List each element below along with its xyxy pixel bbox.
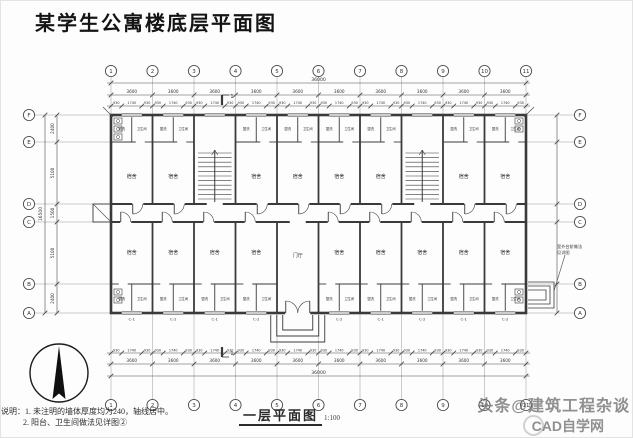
grid-bubble-bottom-3-label: 3 [192,403,196,409]
window-dim-label: 930 [404,349,410,353]
window-mark-label: C-2 [502,317,509,322]
window-dim-label: 930 [310,349,316,353]
window-dim-label: 1740 [376,101,385,105]
room-label-wash: 盥洗 [160,126,167,131]
entrance-porch: 室外台阶做法见详图 [271,243,582,342]
window-dim-label: 930 [351,101,357,105]
left-chain-label: 2400 [50,123,55,134]
window-dim-label: 1740 [335,101,344,105]
window-dim-label: 930 [310,101,316,105]
note-line-1: 说明：1. 未注明的墙体厚度均为240，轴线居中。 [1,406,173,417]
bay-dim-label: 3600 [334,89,345,94]
room-label-bath: 卫生间 [386,126,396,131]
bay-dim-label: 3600 [417,89,428,94]
plan-caption-text: 一层平面图 [239,408,322,426]
grid-bubble-right-D-label: D [578,202,582,208]
room-label-dorm: 宿舍 [459,249,469,256]
grid-bubble-top-3-label: 3 [192,69,196,75]
bay-dim-label: 3600 [500,358,511,363]
room-label-bath: 卫生间 [386,296,396,301]
room-label-bath: 卫生间 [344,126,354,131]
dimension-lines: 3600036003600360036003600360036003600360… [38,77,559,378]
room-label-wash: 盥洗 [326,296,333,301]
grid-bubble-top-10-label: 10 [481,69,488,75]
watermark-line2: CAD自学网 [477,416,604,436]
window-dim-label: 930 [321,101,327,105]
room-label-wash: 盥洗 [326,126,333,131]
window-dim-label: 1740 [169,349,178,353]
room-label-bath: 卫生间 [261,296,271,301]
room-label-dorm: 宿舍 [168,249,178,256]
window-dim-label: 930 [196,101,202,105]
window-dim-label: 930 [113,101,119,105]
window-mark-label: C-1 [378,317,385,322]
grid-bubble-top-8-label: 8 [400,69,404,75]
bay-dim-label: 3600 [209,358,220,363]
window-dim-label: 930 [393,349,399,353]
grid-bubble-left-E-label: E [27,140,31,146]
bay-dim-label: 3600 [168,89,179,94]
bay-dim-label: 3600 [292,358,303,363]
grid-bubble-top-11-label: 11 [523,69,530,75]
window-dim-label: 930 [487,349,493,353]
window-dim-label: 930 [362,349,368,353]
room-label-wash: 盥洗 [243,126,250,131]
plan-caption: 一层平面图1:100 [239,405,340,425]
room-label-wash: 盥洗 [243,296,250,301]
window-dim-label: 1740 [252,349,261,353]
room-label-bath: 卫生间 [220,296,230,301]
room-label-bath: 卫生间 [427,296,437,301]
plan-scale: 1:100 [324,414,340,422]
room-label-bath: 卫生间 [303,126,313,131]
room-label-wash: 盥洗 [492,126,499,131]
window-dim-label: 930 [144,101,150,105]
grid-bubble-bottom-4-label: 4 [234,403,238,409]
room-label-hall: 门厅 [293,252,303,259]
grid-bubble-left-B-label: B [27,282,31,288]
window-dim-label: 930 [434,349,440,353]
window-dim-label: 1740 [127,101,136,105]
window-dim-label: 930 [517,349,523,353]
bay-dim-label: 3600 [417,358,428,363]
grid-bubble-top-9-label: 9 [441,69,445,75]
room-label-dorm: 宿舍 [376,173,386,180]
grid-bubble-left-D-label: D [27,202,31,208]
room-label-wash: 盥洗 [492,296,499,301]
window-dim-label: 1740 [335,349,344,353]
room-label-bath: 卫生间 [510,126,520,131]
window-dim-label: 930 [434,101,440,105]
window-mark-label: C-1 [461,317,468,322]
grid-bubble-top-5-label: 5 [275,69,279,75]
bay-dim-label: 3600 [126,89,137,94]
room-label-dorm: 宿舍 [251,249,261,256]
window-dim-label: 930 [185,101,191,105]
watermark: 头条@建筑工程杂谈 CAD自学网 [477,392,630,436]
room-label-wash: 盥洗 [409,296,416,301]
room-label-dorm: 宿舍 [334,249,344,256]
window-dim-label: 1740 [252,101,261,105]
steps-annotation: 室外台阶做法 [557,243,582,250]
left-chain-label: 5100 [50,247,55,258]
grid-bubble-top-1-label: 1 [109,69,113,75]
window-dim-label: 930 [476,349,482,353]
window-dim-label: 930 [227,101,233,105]
room-label-wash: 盥洗 [284,126,291,131]
window-dim-label: 930 [196,349,202,353]
window-dim-label: 1740 [418,101,427,105]
page-title: 某学生公寓楼底层平面图 [35,7,277,36]
window-dim-label: 1740 [459,101,468,105]
window-dim-label: 930 [268,101,274,105]
room-label-dorm: 宿舍 [168,173,178,180]
grid-bubble-left-A-label: A [27,311,31,317]
room-label-bath: 卫生间 [469,296,479,301]
window-dim-label: 930 [238,101,244,105]
left-chain-label: 1500 [50,207,55,218]
window-mark-label: C-2 [419,317,426,322]
grid-bubble-top-6-label: 6 [317,69,321,75]
room-label-bath: 卫生间 [510,296,520,301]
room-label-wash: 盥洗 [367,296,374,301]
room-label-wash: 盥洗 [367,126,374,131]
bay-dim-label: 3600 [251,89,262,94]
room-label-wash: 盥洗 [160,296,167,301]
overall-length-top: 36000 [311,77,326,83]
room-label-wash: 盥洗 [201,296,208,301]
window-dim-label: 930 [517,101,523,105]
grid-bubble-top-4-label: 4 [234,69,238,75]
window-dim-label: 1740 [501,101,510,105]
window-dim-label: 1740 [293,101,302,105]
overall-width-label: 16500 [38,207,44,221]
window-dim-label: 1740 [210,349,219,353]
window-dim-label: 1740 [376,349,385,353]
window-dim-label: 930 [113,349,119,353]
bay-dim-label: 3600 [209,89,220,94]
window-dim-label: 930 [238,349,244,353]
room-label-dorm: 宿舍 [127,249,137,256]
window-mark-label: C-1 [129,317,136,322]
grid-bubble-bottom-9-label: 9 [441,403,445,409]
left-chain-label: 2400 [50,293,55,304]
window-dim-label: 930 [144,349,150,353]
bay-dim-label: 3600 [458,89,469,94]
bay-dim-label: 3600 [458,358,469,363]
window-mark-label: C-1 [212,317,219,322]
window-dim-label: 930 [279,101,285,105]
window-dim-label: 930 [155,349,161,353]
bay-dim-label: 3600 [126,358,137,363]
grid-bubble-right-B-label: B [578,282,582,288]
window-dim-label: 930 [445,101,451,105]
room-label-bath: 卫生间 [261,126,271,131]
grid-bubble-top-2-label: 2 [151,69,155,75]
grid-bubble-right-A-label: A [578,311,582,317]
room-label-dorm: 宿舍 [293,173,303,180]
window-dim-label: 930 [487,101,493,105]
window-dim-label: 930 [279,349,285,353]
section-mark-label: 1 [230,351,233,357]
window-dim-label: 930 [351,349,357,353]
grid-bubble-bottom-7-label: 7 [358,403,362,409]
north-compass-icon [30,344,88,402]
room-label-dorm: 宿舍 [500,173,510,180]
grid-bubble-right-E-label: E [578,140,582,146]
grid-bubble-bottom-8-label: 8 [400,403,404,409]
room-label-dorm: 宿舍 [500,249,510,256]
room-label-bath: 卫生间 [178,126,188,131]
room-label-dorm: 宿舍 [376,249,386,256]
room-label-dorm: 宿舍 [210,249,220,256]
window-mark-label: C-2 [253,317,260,322]
window-mark-label: C-2 [170,317,177,322]
grid-bubble-right-F-label: F [578,113,581,119]
window-dim-label: 1740 [293,349,302,353]
room-label-bath: 卫生间 [178,296,188,301]
bay-dim-label: 3600 [375,358,386,363]
window-dim-label: 930 [393,101,399,105]
window-dim-label: 930 [362,101,368,105]
room-label-wash: 盥洗 [118,126,125,131]
room-label-dorm: 宿舍 [251,173,261,180]
window-dim-label: 1740 [459,349,468,353]
bay-dim-label: 3600 [292,89,303,94]
section-marks: 11 [222,94,234,357]
window-dim-label: 930 [185,349,191,353]
floor-plan-drawing: 11223344556677889910101111FFEEDDCCBBAA36… [1,1,633,438]
steps-annotation: 见详图 [557,249,570,256]
note-line-2: 2. 阳台、卫生间做法见详图② [23,417,173,428]
room-label-bath: 卫生间 [137,126,147,131]
room-label-wash: 盥洗 [450,126,457,131]
room-label-dorm: 宿舍 [417,249,427,256]
window-mark-label: C-2 [336,317,343,322]
room-label-dorm: 宿舍 [459,173,469,180]
window-dim-label: 930 [155,101,161,105]
grid-bubble-left-C-label: C [27,220,31,226]
room-label-bath: 卫生间 [344,296,354,301]
room-label-wash: 盥洗 [118,296,125,301]
bay-dim-label: 3600 [168,358,179,363]
window-dim-label: 1740 [169,101,178,105]
overall-length-bottom: 36000 [311,370,326,376]
room-label-bath: 卫生间 [137,296,147,301]
window-dim-label: 1740 [127,349,136,353]
room-label-bath: 卫生间 [469,126,479,131]
grid-bubble-right-C-label: C [578,220,582,226]
plan-notes: 说明：1. 未注明的墙体厚度均为240，轴线居中。 2. 阳台、卫生间做法见详图… [1,406,173,428]
window-dim-label: 930 [445,349,451,353]
bay-dim-label: 3600 [251,358,262,363]
section-mark-label: 1 [230,94,233,100]
window-dim-label: 1740 [210,101,219,105]
watermark-line1: 头条@建筑工程杂谈 [477,392,630,416]
room-label-dorm: 宿舍 [127,173,137,180]
grid-bubble-left-F-label: F [27,113,30,119]
window-dim-label: 1740 [501,349,510,353]
window-dim-label: 1740 [418,349,427,353]
bay-dim-label: 3600 [334,358,345,363]
bay-dim-label: 3600 [500,89,511,94]
window-dim-label: 930 [404,101,410,105]
window-dim-label: 930 [476,101,482,105]
building-walls [93,107,534,313]
room-label-wash: 盥洗 [450,296,457,301]
window-dim-label: 930 [321,349,327,353]
left-chain-label: 5100 [50,167,55,178]
room-label-dorm: 宿舍 [334,173,344,180]
window-dim-label: 930 [268,349,274,353]
grid-bubble-top-7-label: 7 [358,69,362,75]
floor-plan-page: 11223344556677889910101111FFEEDDCCBBAA36… [0,0,633,438]
bay-dim-label: 3600 [375,89,386,94]
